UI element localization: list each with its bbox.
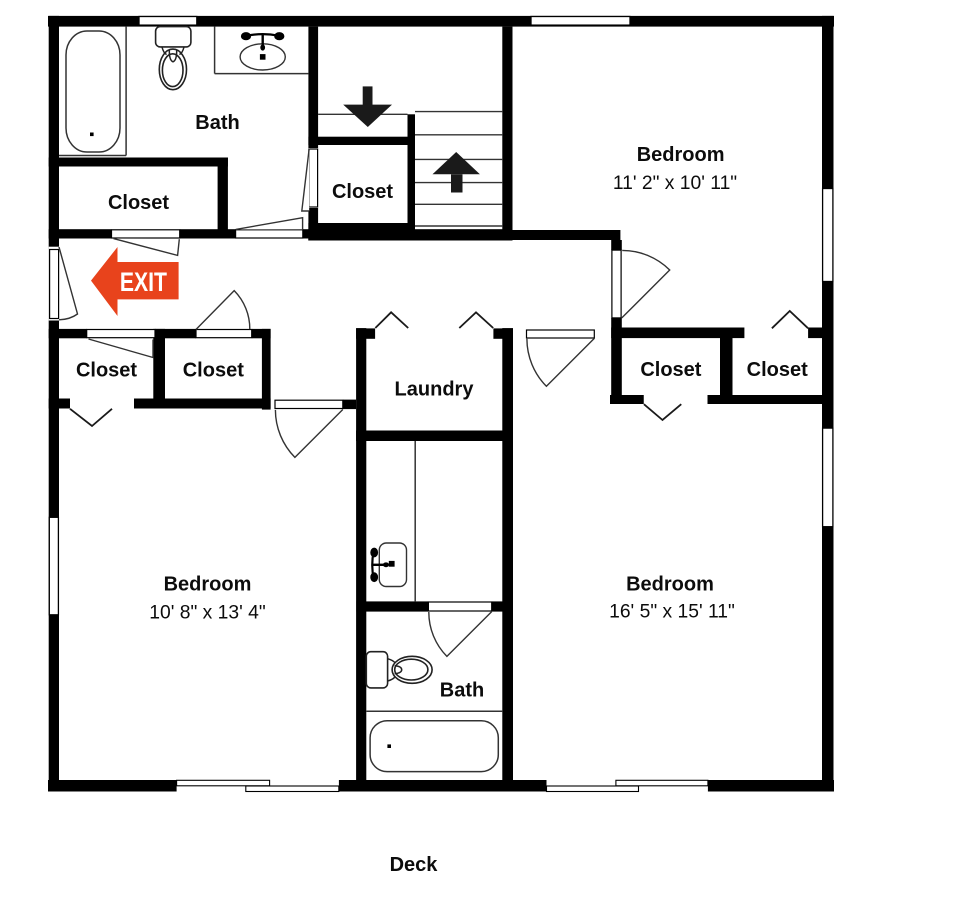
svg-text:Bedroom: Bedroom xyxy=(626,573,714,595)
svg-text:Bedroom: Bedroom xyxy=(637,144,725,166)
svg-text:EXIT: EXIT xyxy=(120,268,167,298)
svg-text:Closet: Closet xyxy=(76,359,137,381)
svg-text:Laundry: Laundry xyxy=(395,378,475,400)
svg-text:Closet: Closet xyxy=(640,359,701,381)
svg-text:Bath: Bath xyxy=(440,679,484,701)
svg-text:Bedroom: Bedroom xyxy=(164,573,252,595)
svg-text:Closet: Closet xyxy=(108,192,169,214)
svg-text:Closet: Closet xyxy=(183,359,244,381)
svg-text:Closet: Closet xyxy=(747,359,808,381)
svg-text:Bath: Bath xyxy=(195,112,239,134)
svg-text:11' 2" x 10' 11": 11' 2" x 10' 11" xyxy=(613,173,737,194)
svg-text:16' 5" x 15' 11": 16' 5" x 15' 11" xyxy=(609,602,735,623)
svg-text:10' 8" x 13' 4": 10' 8" x 13' 4" xyxy=(149,603,266,624)
svg-text:Deck: Deck xyxy=(390,854,439,876)
svg-text:Closet: Closet xyxy=(332,181,393,203)
